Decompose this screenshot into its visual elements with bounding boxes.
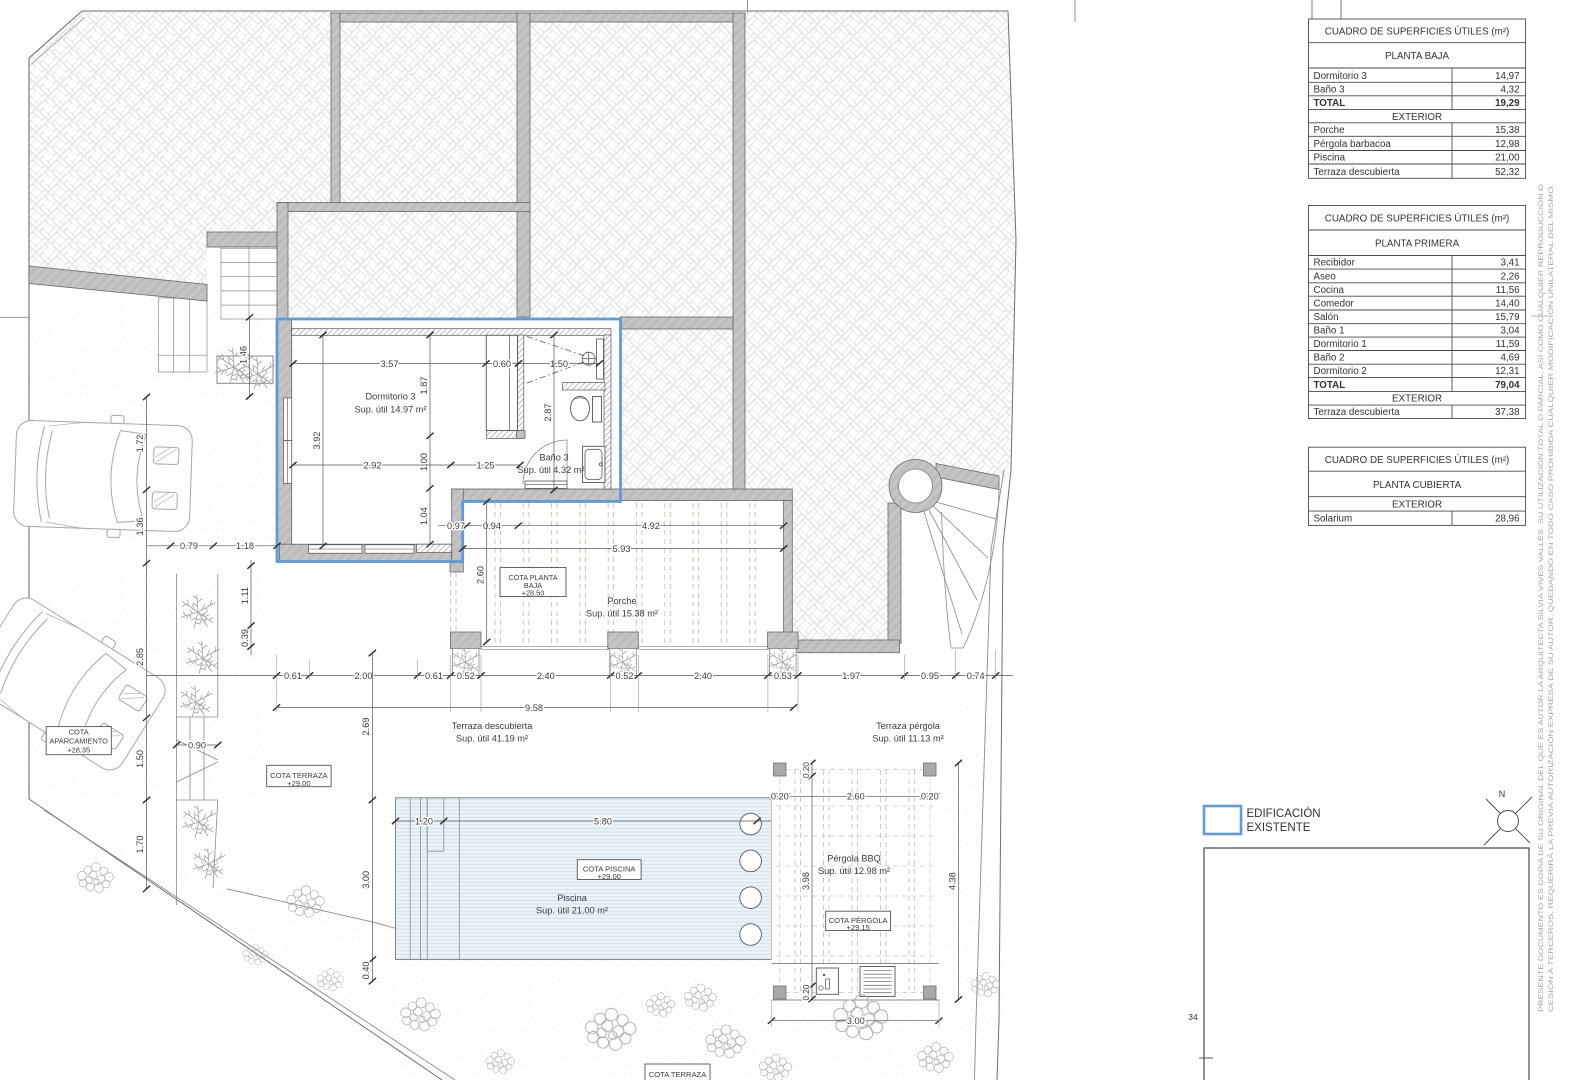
svg-text:Porche: Porche [607,596,636,606]
svg-text:0.20: 0.20 [771,792,789,802]
svg-text:0.61: 0.61 [284,671,302,681]
svg-text:PLANTA BAJA: PLANTA BAJA [1385,51,1450,62]
svg-text:N: N [1499,789,1506,799]
svg-text:1.20: 1.20 [415,816,433,826]
svg-text:PLANTA CUBIERTA: PLANTA CUBIERTA [1373,480,1462,491]
svg-text:0.97: 0.97 [447,521,465,531]
svg-text:EXTERIOR: EXTERIOR [1392,500,1442,511]
svg-text:34: 34 [1188,1012,1198,1022]
svg-text:Sup. útil 12.98 m²: Sup. útil 12.98 m² [818,866,890,876]
svg-text:4,32: 4,32 [1501,85,1520,96]
svg-text:Porche: Porche [1314,125,1346,136]
svg-text:0.95: 0.95 [921,671,939,681]
svg-text:2.40: 2.40 [694,671,712,681]
svg-text:Sup. útil 14.97 m²: Sup. útil 14.97 m² [354,405,426,415]
svg-text:0.39: 0.39 [240,629,250,647]
svg-text:CUADRO DE SUPERFICIES ÚTILES (: CUADRO DE SUPERFICIES ÚTILES (m²) [1325,27,1510,38]
svg-text:PLANTA PRIMERA: PLANTA PRIMERA [1375,239,1460,250]
svg-text:5.93: 5.93 [613,544,631,554]
svg-text:Baño 1: Baño 1 [1314,325,1345,336]
svg-text:14,97: 14,97 [1495,71,1520,82]
svg-text:APARCAMIENTO: APARCAMIENTO [49,737,108,746]
svg-text:Cocina: Cocina [1314,285,1345,296]
svg-text:9.58: 9.58 [525,703,543,713]
svg-text:TOTAL: TOTAL [1314,380,1346,391]
svg-text:Terraza pérgola: Terraza pérgola [876,721,941,731]
svg-text:2.92: 2.92 [364,460,382,470]
svg-text:15,38: 15,38 [1495,125,1520,136]
svg-text:2.00: 2.00 [355,671,373,681]
svg-text:EXTERIOR: EXTERIOR [1392,394,1442,405]
svg-text:Sup. útil 11.13 m²: Sup. útil 11.13 m² [872,734,943,744]
svg-text:2.87: 2.87 [543,404,553,422]
svg-text:11,56: 11,56 [1496,285,1520,296]
svg-text:+29.15: +29.15 [846,923,869,932]
svg-text:0.20: 0.20 [802,984,811,1000]
svg-text:1.50: 1.50 [135,750,145,768]
svg-text:TOTAL: TOTAL [1314,98,1346,109]
svg-text:Terraza descubierta: Terraza descubierta [1314,407,1401,418]
svg-text:Terraza descubierta: Terraza descubierta [1314,167,1401,178]
svg-text:3.98: 3.98 [801,872,811,890]
svg-text:21,00: 21,00 [1495,153,1520,164]
svg-text:12,31: 12,31 [1495,366,1520,377]
svg-text:PRESENTE DOCUMENTO ES COPIA DE: PRESENTE DOCUMENTO ES COPIA DE SU ORIGIN… [1538,184,1545,1012]
svg-text:1.46: 1.46 [238,346,248,364]
svg-text:1.70: 1.70 [135,836,145,854]
svg-text:0.61: 0.61 [425,671,443,681]
svg-text:1.25: 1.25 [477,460,495,470]
svg-text:Sup. útil 41.19 m²: Sup. útil 41.19 m² [456,734,528,744]
svg-text:Sup. útil 15.38 m²: Sup. útil 15.38 m² [586,609,658,619]
svg-text:Baño 3: Baño 3 [1314,85,1346,96]
svg-text:Dormitorio 3: Dormitorio 3 [365,392,415,402]
svg-text:+29.00: +29.00 [597,872,620,881]
svg-text:CUADRO DE SUPERFICIES ÚTILES (: CUADRO DE SUPERFICIES ÚTILES (m²) [1325,214,1510,225]
svg-text:5.80: 5.80 [594,816,612,826]
svg-text:Dormitorio 2: Dormitorio 2 [1314,366,1367,377]
svg-text:2,26: 2,26 [1501,271,1521,282]
svg-text:Dormitorio 1: Dormitorio 1 [1314,339,1367,350]
svg-text:0.53: 0.53 [774,671,792,681]
svg-text:3.00: 3.00 [361,871,371,889]
svg-text:Pérgola barbacoa: Pérgola barbacoa [1314,139,1392,150]
svg-text:1.04: 1.04 [419,507,429,525]
svg-text:Sup. útil 21.00 m²: Sup. útil 21.00 m² [536,906,608,916]
svg-text:EXISTENTE: EXISTENTE [1247,822,1311,834]
svg-text:0.94: 0.94 [483,521,501,531]
svg-text:+28.50: +28.50 [522,589,545,598]
svg-text:EDIFICACIÓN: EDIFICACIÓN [1247,807,1321,820]
svg-text:Pérgola BBQ: Pérgola BBQ [827,854,881,864]
svg-text:2.60: 2.60 [476,566,486,584]
svg-text:0.60: 0.60 [493,359,511,369]
svg-text:11,59: 11,59 [1496,339,1520,350]
svg-text:0.20: 0.20 [921,792,939,802]
svg-text:COTA: COTA [69,728,89,737]
svg-text:0.74: 0.74 [967,671,985,681]
svg-text:0.90: 0.90 [188,740,206,750]
svg-text:2.85: 2.85 [135,648,145,666]
svg-text:+29,00: +29,00 [287,779,310,788]
svg-text:Dormitorio 3: Dormitorio 3 [1314,71,1368,82]
svg-text:1.00: 1.00 [419,453,429,471]
svg-text:Aseo: Aseo [1314,271,1337,282]
svg-text:37,38: 37,38 [1495,407,1520,418]
svg-text:0.52: 0.52 [457,671,475,681]
svg-text:Comedor: Comedor [1314,298,1355,309]
svg-text:4,69: 4,69 [1501,353,1520,364]
svg-text:2.40: 2.40 [537,671,555,681]
svg-text:79,04: 79,04 [1495,380,1520,391]
svg-text:EXTERIOR: EXTERIOR [1392,112,1442,123]
svg-text:0.52: 0.52 [616,671,634,681]
svg-text:Recibidor: Recibidor [1314,258,1356,269]
svg-text:Baño 3: Baño 3 [539,453,568,463]
svg-text:CESIÓN A TERCEROS, REQUERIRÁ L: CESIÓN A TERCEROS, REQUERIRÁ LA PREVIA A… [1548,183,1555,1012]
svg-text:1.87: 1.87 [419,377,429,395]
svg-text:0.79: 0.79 [180,541,198,551]
svg-text:3,04: 3,04 [1501,325,1521,336]
svg-text:0.40: 0.40 [361,961,371,979]
svg-text:3.57: 3.57 [381,359,399,369]
svg-text:4.38: 4.38 [947,872,957,890]
svg-text:14,40: 14,40 [1495,298,1520,309]
svg-text:Piscina: Piscina [557,893,588,903]
svg-text:1.18: 1.18 [236,541,254,551]
svg-text:1.36: 1.36 [135,518,145,536]
svg-text:0.20: 0.20 [802,762,811,778]
svg-text:28,96: 28,96 [1495,514,1520,525]
svg-text:1.97: 1.97 [842,671,860,681]
svg-text:Terraza descubierta: Terraza descubierta [452,721,534,731]
svg-text:1.11: 1.11 [240,587,250,604]
svg-text:1.50: 1.50 [550,359,568,369]
svg-text:Solarium: Solarium [1314,514,1353,525]
svg-text:52,32: 52,32 [1495,167,1520,178]
svg-text:2.69: 2.69 [361,718,371,736]
svg-text:15,79: 15,79 [1495,312,1520,323]
svg-text:3.92: 3.92 [312,432,322,450]
svg-text:12,98: 12,98 [1495,139,1520,150]
svg-text:Salón: Salón [1314,312,1339,323]
svg-text:1.72: 1.72 [135,434,145,452]
svg-text:3.00: 3.00 [847,1016,865,1026]
svg-text:CUADRO DE SUPERFICIES ÚTILES (: CUADRO DE SUPERFICIES ÚTILES (m²) [1325,455,1510,466]
svg-text:3,41: 3,41 [1501,258,1520,269]
svg-text:Baño 2: Baño 2 [1314,353,1345,364]
svg-text:+28,35: +28,35 [67,746,90,755]
svg-text:Sup. útil 4.32 m²: Sup. útil 4.32 m² [518,465,585,475]
svg-text:Piscina: Piscina [1314,153,1346,164]
svg-text:19,29: 19,29 [1495,98,1520,109]
svg-text:2.60: 2.60 [847,792,865,802]
svg-text:4.92: 4.92 [642,521,660,531]
